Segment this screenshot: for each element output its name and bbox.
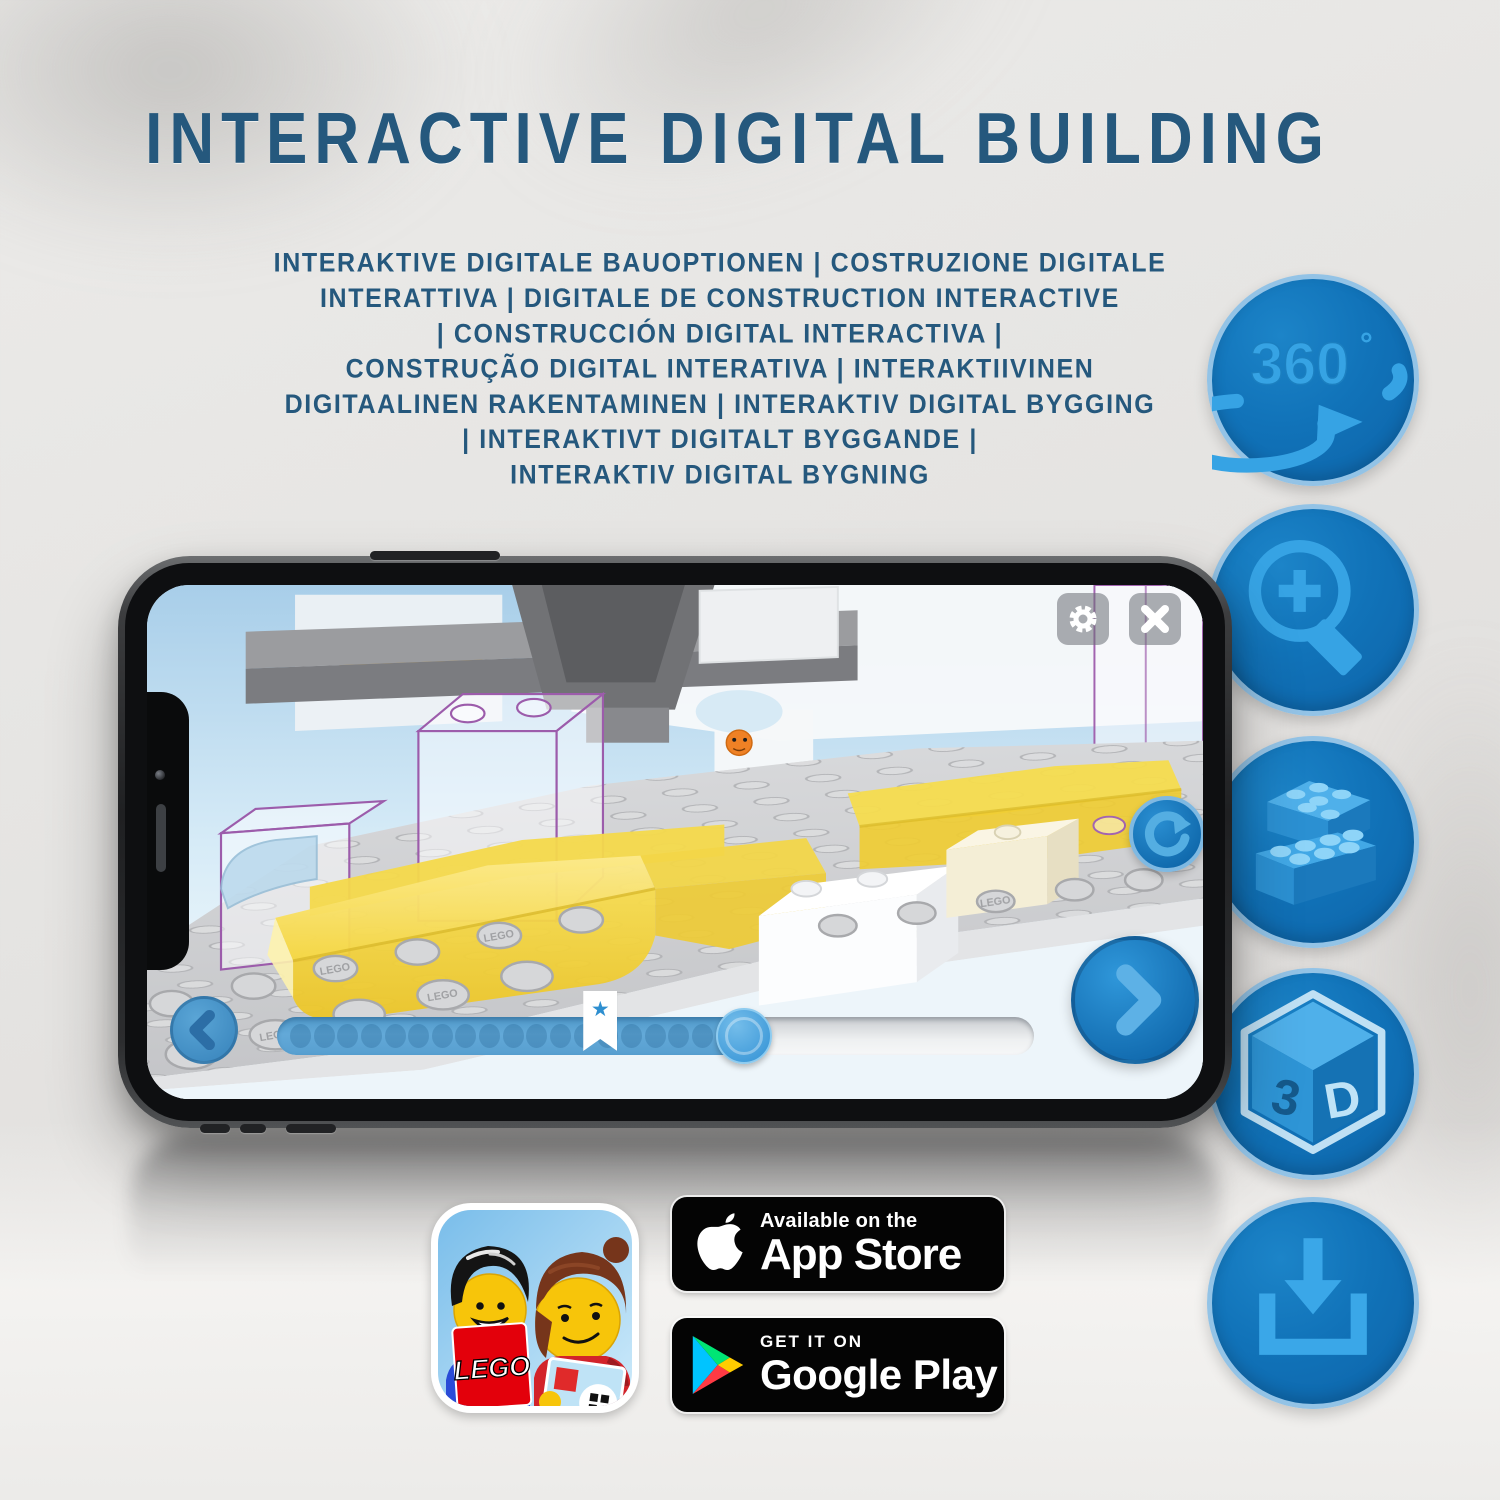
mute-switch — [200, 1124, 230, 1133]
subtitle-block: INTERAKTIVE DIGITALE BAUOPTIONEN | COSTR… — [180, 246, 1260, 493]
progress-dot — [692, 1024, 713, 1048]
lego-logo-text: LEGO — [453, 1351, 531, 1386]
reset-view-button[interactable] — [1129, 796, 1203, 872]
previous-step-button[interactable] — [170, 996, 238, 1064]
rotation-360-icon: 360 ° — [1207, 274, 1419, 486]
google-play-line1: GET IT ON — [760, 1332, 997, 1352]
progress-dot — [503, 1024, 524, 1048]
progress-dot — [385, 1024, 406, 1048]
settings-button[interactable] — [1057, 593, 1109, 645]
progress-dot — [668, 1024, 689, 1048]
phone-screen: LEGO LEGO LEGO LEGO LEGO — [147, 585, 1203, 1099]
build-progress-bar[interactable]: ★ — [277, 1017, 1034, 1055]
progress-dot — [645, 1024, 666, 1048]
phone-notch — [147, 692, 189, 970]
page-title: INTERACTIVE DIGITAL BUILDING — [0, 98, 1476, 180]
google-play-icon — [692, 1336, 744, 1394]
progress-dots — [290, 1024, 713, 1048]
zoom-in-icon — [1207, 504, 1419, 716]
close-button[interactable] — [1129, 593, 1181, 645]
google-play-line2: Google Play — [760, 1352, 997, 1398]
degree-symbol: ° — [1360, 326, 1373, 362]
app-store-line2: App Store — [760, 1232, 961, 1278]
download-icon — [1207, 1197, 1419, 1409]
subtitle-line: | INTERAKTIVT DIGITALT BYGGANDE | — [180, 423, 1260, 458]
progress-dot — [361, 1024, 382, 1048]
subtitle-line: CONSTRUÇÃO DIGITAL INTERATIVA | INTERAKT… — [180, 352, 1260, 387]
progress-dot — [290, 1024, 311, 1048]
lego-app-art: LEGO — [438, 1210, 632, 1406]
progress-dot — [408, 1024, 429, 1048]
next-step-button[interactable] — [1071, 936, 1199, 1064]
subtitle-line: INTERAKTIVE DIGITALE BAUOPTIONEN | COSTR… — [180, 246, 1260, 281]
chevron-left-icon — [173, 999, 235, 1061]
lego-builder-app-icon[interactable]: LEGO — [431, 1203, 639, 1413]
gear-icon — [1066, 602, 1100, 636]
3d-view-icon: 3 D — [1207, 968, 1419, 1180]
google-play-badge[interactable]: GET IT ON Google Play — [672, 1318, 1004, 1412]
progress-dot — [432, 1024, 453, 1048]
chevron-right-icon — [1075, 940, 1195, 1060]
app-store-badge[interactable]: Available on the App Store — [672, 1197, 1004, 1291]
progress-dot — [337, 1024, 358, 1048]
brick-icon — [1207, 736, 1419, 948]
subtitle-line: DIGITAALINEN RAKENTAMINEN | INTERAKTIV D… — [180, 387, 1260, 422]
progress-dot — [526, 1024, 547, 1048]
close-icon — [1138, 602, 1172, 636]
progress-dot — [479, 1024, 500, 1048]
progress-dot — [455, 1024, 476, 1048]
progress-dot — [550, 1024, 571, 1048]
progress-knob[interactable] — [716, 1008, 772, 1064]
smartphone: LEGO LEGO LEGO LEGO LEGO — [118, 556, 1232, 1128]
subtitle-line: | CONSTRUCCIÓN DIGITAL INTERACTIVA | — [180, 317, 1260, 352]
volume-down-button — [286, 1124, 336, 1133]
subtitle-line: INTERATTIVA | DIGITALE DE CONSTRUCTION I… — [180, 281, 1260, 316]
rotation-360-label: 360 — [1250, 331, 1349, 397]
rotate-arrow-icon — [1133, 800, 1201, 868]
earpiece-speaker — [156, 804, 166, 872]
subtitle-line: INTERAKTIV DIGITAL BYGNING — [180, 458, 1260, 493]
front-camera — [155, 770, 165, 780]
volume-up-button — [240, 1124, 266, 1133]
progress-dot — [314, 1024, 335, 1048]
power-button — [370, 551, 500, 560]
progress-dot — [621, 1024, 642, 1048]
app-store-line1: Available on the — [760, 1210, 961, 1232]
apple-icon — [692, 1213, 744, 1275]
phone-bezel: LEGO LEGO LEGO LEGO LEGO — [125, 563, 1225, 1121]
